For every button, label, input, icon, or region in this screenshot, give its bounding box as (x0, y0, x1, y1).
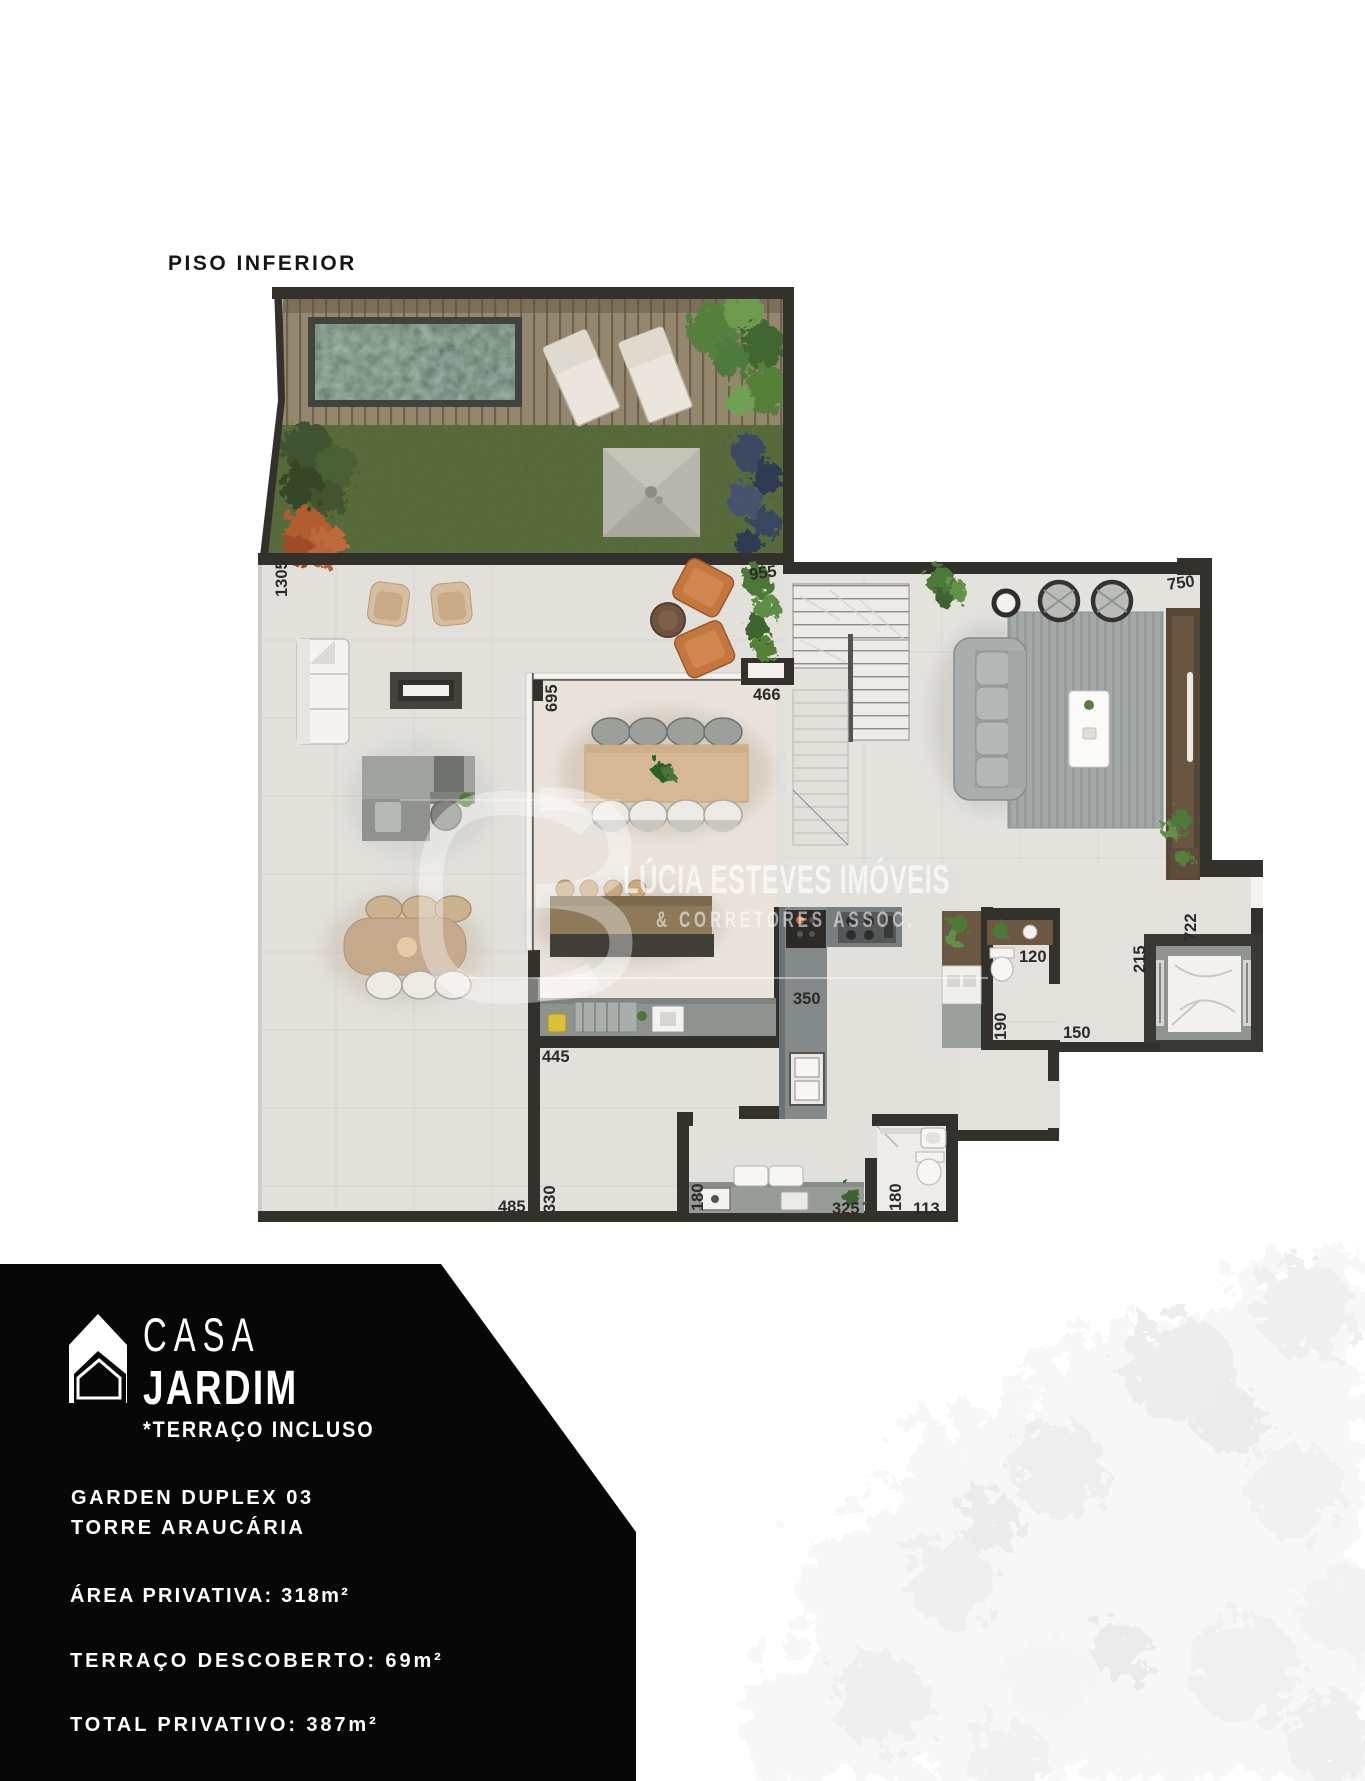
svg-text:215: 215 (1131, 945, 1149, 973)
svg-text:190: 190 (992, 1012, 1010, 1040)
svg-text:120: 120 (1019, 948, 1047, 966)
svg-text:695: 695 (543, 684, 561, 712)
svg-text:750: 750 (1166, 572, 1196, 594)
svg-text:TORRE ARAUCÁRIA: TORRE ARAUCÁRIA (71, 1516, 306, 1539)
svg-text:TERRAÇO DESCOBERTO: 69m²: TERRAÇO DESCOBERTO: 69m² (70, 1650, 444, 1672)
svg-text:GARDEN DUPLEX 03: GARDEN DUPLEX 03 (71, 1487, 314, 1509)
svg-text:LÚCIA ESTEVES IMÓVEIS: LÚCIA ESTEVES IMÓVEIS (623, 857, 950, 902)
svg-text:150: 150 (1063, 1024, 1091, 1042)
svg-text:330: 330 (541, 1185, 559, 1213)
svg-text:180: 180 (689, 1183, 707, 1211)
svg-text:& CORRETORES ASSOC.: & CORRETORES ASSOC. (656, 908, 915, 932)
svg-text:CASA: CASA (143, 1308, 261, 1361)
svg-text:180: 180 (887, 1183, 905, 1211)
svg-text:TOTAL PRIVATIVO: 387m²: TOTAL PRIVATIVO: 387m² (70, 1714, 379, 1736)
svg-text:113: 113 (913, 1200, 940, 1218)
svg-text:*TERRAÇO INCLUSO: *TERRAÇO INCLUSO (143, 1418, 375, 1442)
svg-text:445: 445 (542, 1048, 570, 1066)
svg-text:466: 466 (753, 686, 781, 704)
svg-text:JARDIM: JARDIM (143, 1361, 299, 1415)
svg-text:ÁREA PRIVATIVA: 318m²: ÁREA PRIVATIVA: 318m² (70, 1584, 350, 1607)
svg-text:PISO INFERIOR: PISO INFERIOR (168, 252, 357, 275)
svg-text:955: 955 (748, 562, 778, 584)
svg-text:722: 722 (1182, 913, 1200, 941)
svg-text:325: 325 (832, 1200, 860, 1218)
svg-text:350: 350 (793, 990, 821, 1008)
svg-text:1305: 1305 (273, 560, 291, 597)
svg-text:485: 485 (498, 1198, 526, 1216)
